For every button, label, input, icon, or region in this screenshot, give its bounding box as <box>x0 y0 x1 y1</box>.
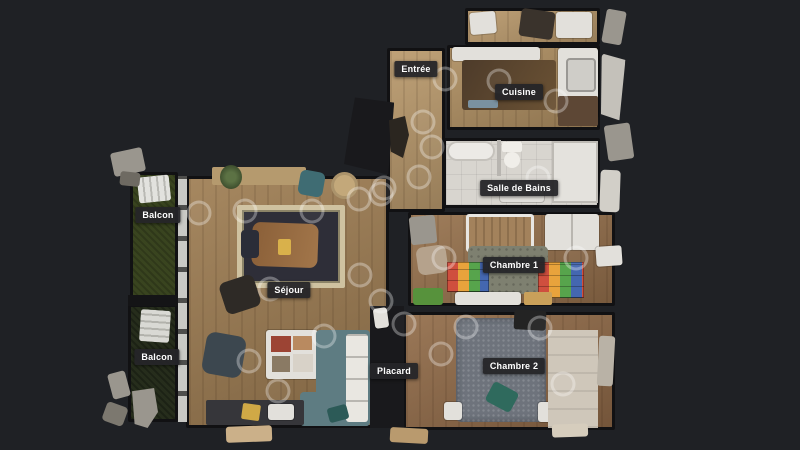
magazine-white <box>293 354 313 372</box>
kitchen-mat <box>468 100 498 108</box>
gold-cushion <box>278 239 291 255</box>
sweep-marker[interactable] <box>300 199 325 224</box>
sweep-marker[interactable] <box>266 379 291 404</box>
kitchen-counter <box>452 47 540 61</box>
room-label-cuisine: Cuisine <box>495 84 543 100</box>
scan-artifact <box>597 336 616 387</box>
sweep-marker[interactable] <box>369 289 394 314</box>
scan-artifact <box>226 425 273 443</box>
nightstand-left <box>444 402 462 420</box>
bench-box <box>268 404 294 420</box>
lounge-chair-bas <box>139 309 171 343</box>
dollhouse-view[interactable]: Entrée Cuisine Salle de Bains Chambre 1 … <box>0 0 800 450</box>
dresser <box>409 215 438 246</box>
sweep-marker[interactable] <box>312 324 337 349</box>
shelf-unit <box>556 12 592 38</box>
sweep-marker[interactable] <box>348 263 373 288</box>
sweep-marker[interactable] <box>237 349 262 374</box>
room-label-chambre-2: Chambre 2 <box>483 358 545 374</box>
accent-chair <box>297 169 326 198</box>
sink-basin <box>566 58 596 92</box>
sweep-marker[interactable] <box>564 246 589 271</box>
wardrobe <box>545 214 599 250</box>
scan-artifact <box>119 171 140 187</box>
sweep-marker[interactable] <box>551 372 576 397</box>
sweep-marker[interactable] <box>432 246 457 271</box>
sweep-marker[interactable] <box>392 312 417 337</box>
shower <box>552 141 598 203</box>
balcony-divider-wall <box>128 295 178 306</box>
room-label-balcon-haut: Balcon <box>135 207 180 223</box>
desk-chair <box>518 8 556 40</box>
toilet-bowl <box>504 152 520 168</box>
scan-artifact <box>598 53 625 120</box>
sweep-marker[interactable] <box>454 315 479 340</box>
desk <box>469 11 497 35</box>
sweep-marker[interactable] <box>372 176 397 201</box>
scan-artifact <box>595 245 622 267</box>
lounge-chair-haut <box>137 174 172 203</box>
scan-artifact <box>390 427 429 444</box>
bathroom-partition <box>497 140 501 176</box>
room-label-entree: Entrée <box>394 61 437 77</box>
unscanned-corner <box>344 97 395 175</box>
toilet-tank <box>502 142 522 152</box>
sweep-marker[interactable] <box>528 316 553 341</box>
toy-chest <box>524 292 552 305</box>
sofa-cushions <box>346 334 368 422</box>
room-label-balcon-bas: Balcon <box>134 349 179 365</box>
magazine-red <box>271 336 291 352</box>
sweep-marker[interactable] <box>347 187 372 212</box>
yellow-cushion <box>241 403 261 421</box>
sweep-marker[interactable] <box>420 135 445 160</box>
scan-artifact <box>604 122 635 161</box>
bathtub <box>447 141 495 161</box>
sweep-marker[interactable] <box>544 89 569 114</box>
scan-artifact <box>599 170 620 213</box>
railing-fragment <box>132 388 158 428</box>
plant <box>220 165 242 189</box>
sweep-marker[interactable] <box>411 110 436 135</box>
sweep-marker[interactable] <box>407 165 432 190</box>
magazine-brown <box>272 356 290 372</box>
sweep-marker[interactable] <box>429 342 454 367</box>
scan-artifact <box>552 423 588 437</box>
room-label-chambre-1: Chambre 1 <box>483 257 545 273</box>
daybed-headrest <box>241 230 259 258</box>
room-label-placard: Placard <box>370 363 418 379</box>
magazine-tan <box>293 336 312 350</box>
sweep-marker[interactable] <box>187 201 212 226</box>
sweep-marker[interactable] <box>233 199 258 224</box>
room-label-sejour: Séjour <box>267 282 310 298</box>
changing-table <box>455 292 521 305</box>
scan-artifact <box>101 401 129 427</box>
toy-bin <box>413 288 443 305</box>
room-label-salle-de-bains: Salle de Bains <box>480 180 558 196</box>
scan-artifact <box>601 9 627 46</box>
